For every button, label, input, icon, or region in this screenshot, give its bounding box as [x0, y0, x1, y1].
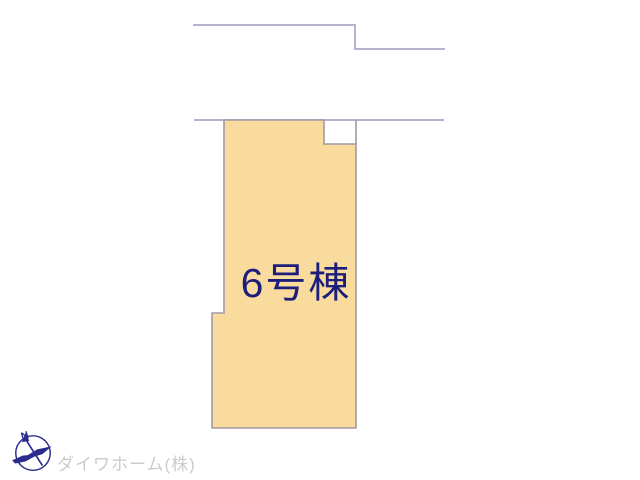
- compass-north-icon: N: [10, 429, 56, 475]
- plot-label: 6号棟: [241, 249, 352, 309]
- boundary-line-upper: [193, 25, 445, 49]
- site-plan-drawing: [0, 0, 640, 480]
- site-plan-canvas: 6号棟 N ダイワホーム(株): [0, 0, 640, 480]
- company-watermark: ダイワホーム(株): [57, 450, 196, 475]
